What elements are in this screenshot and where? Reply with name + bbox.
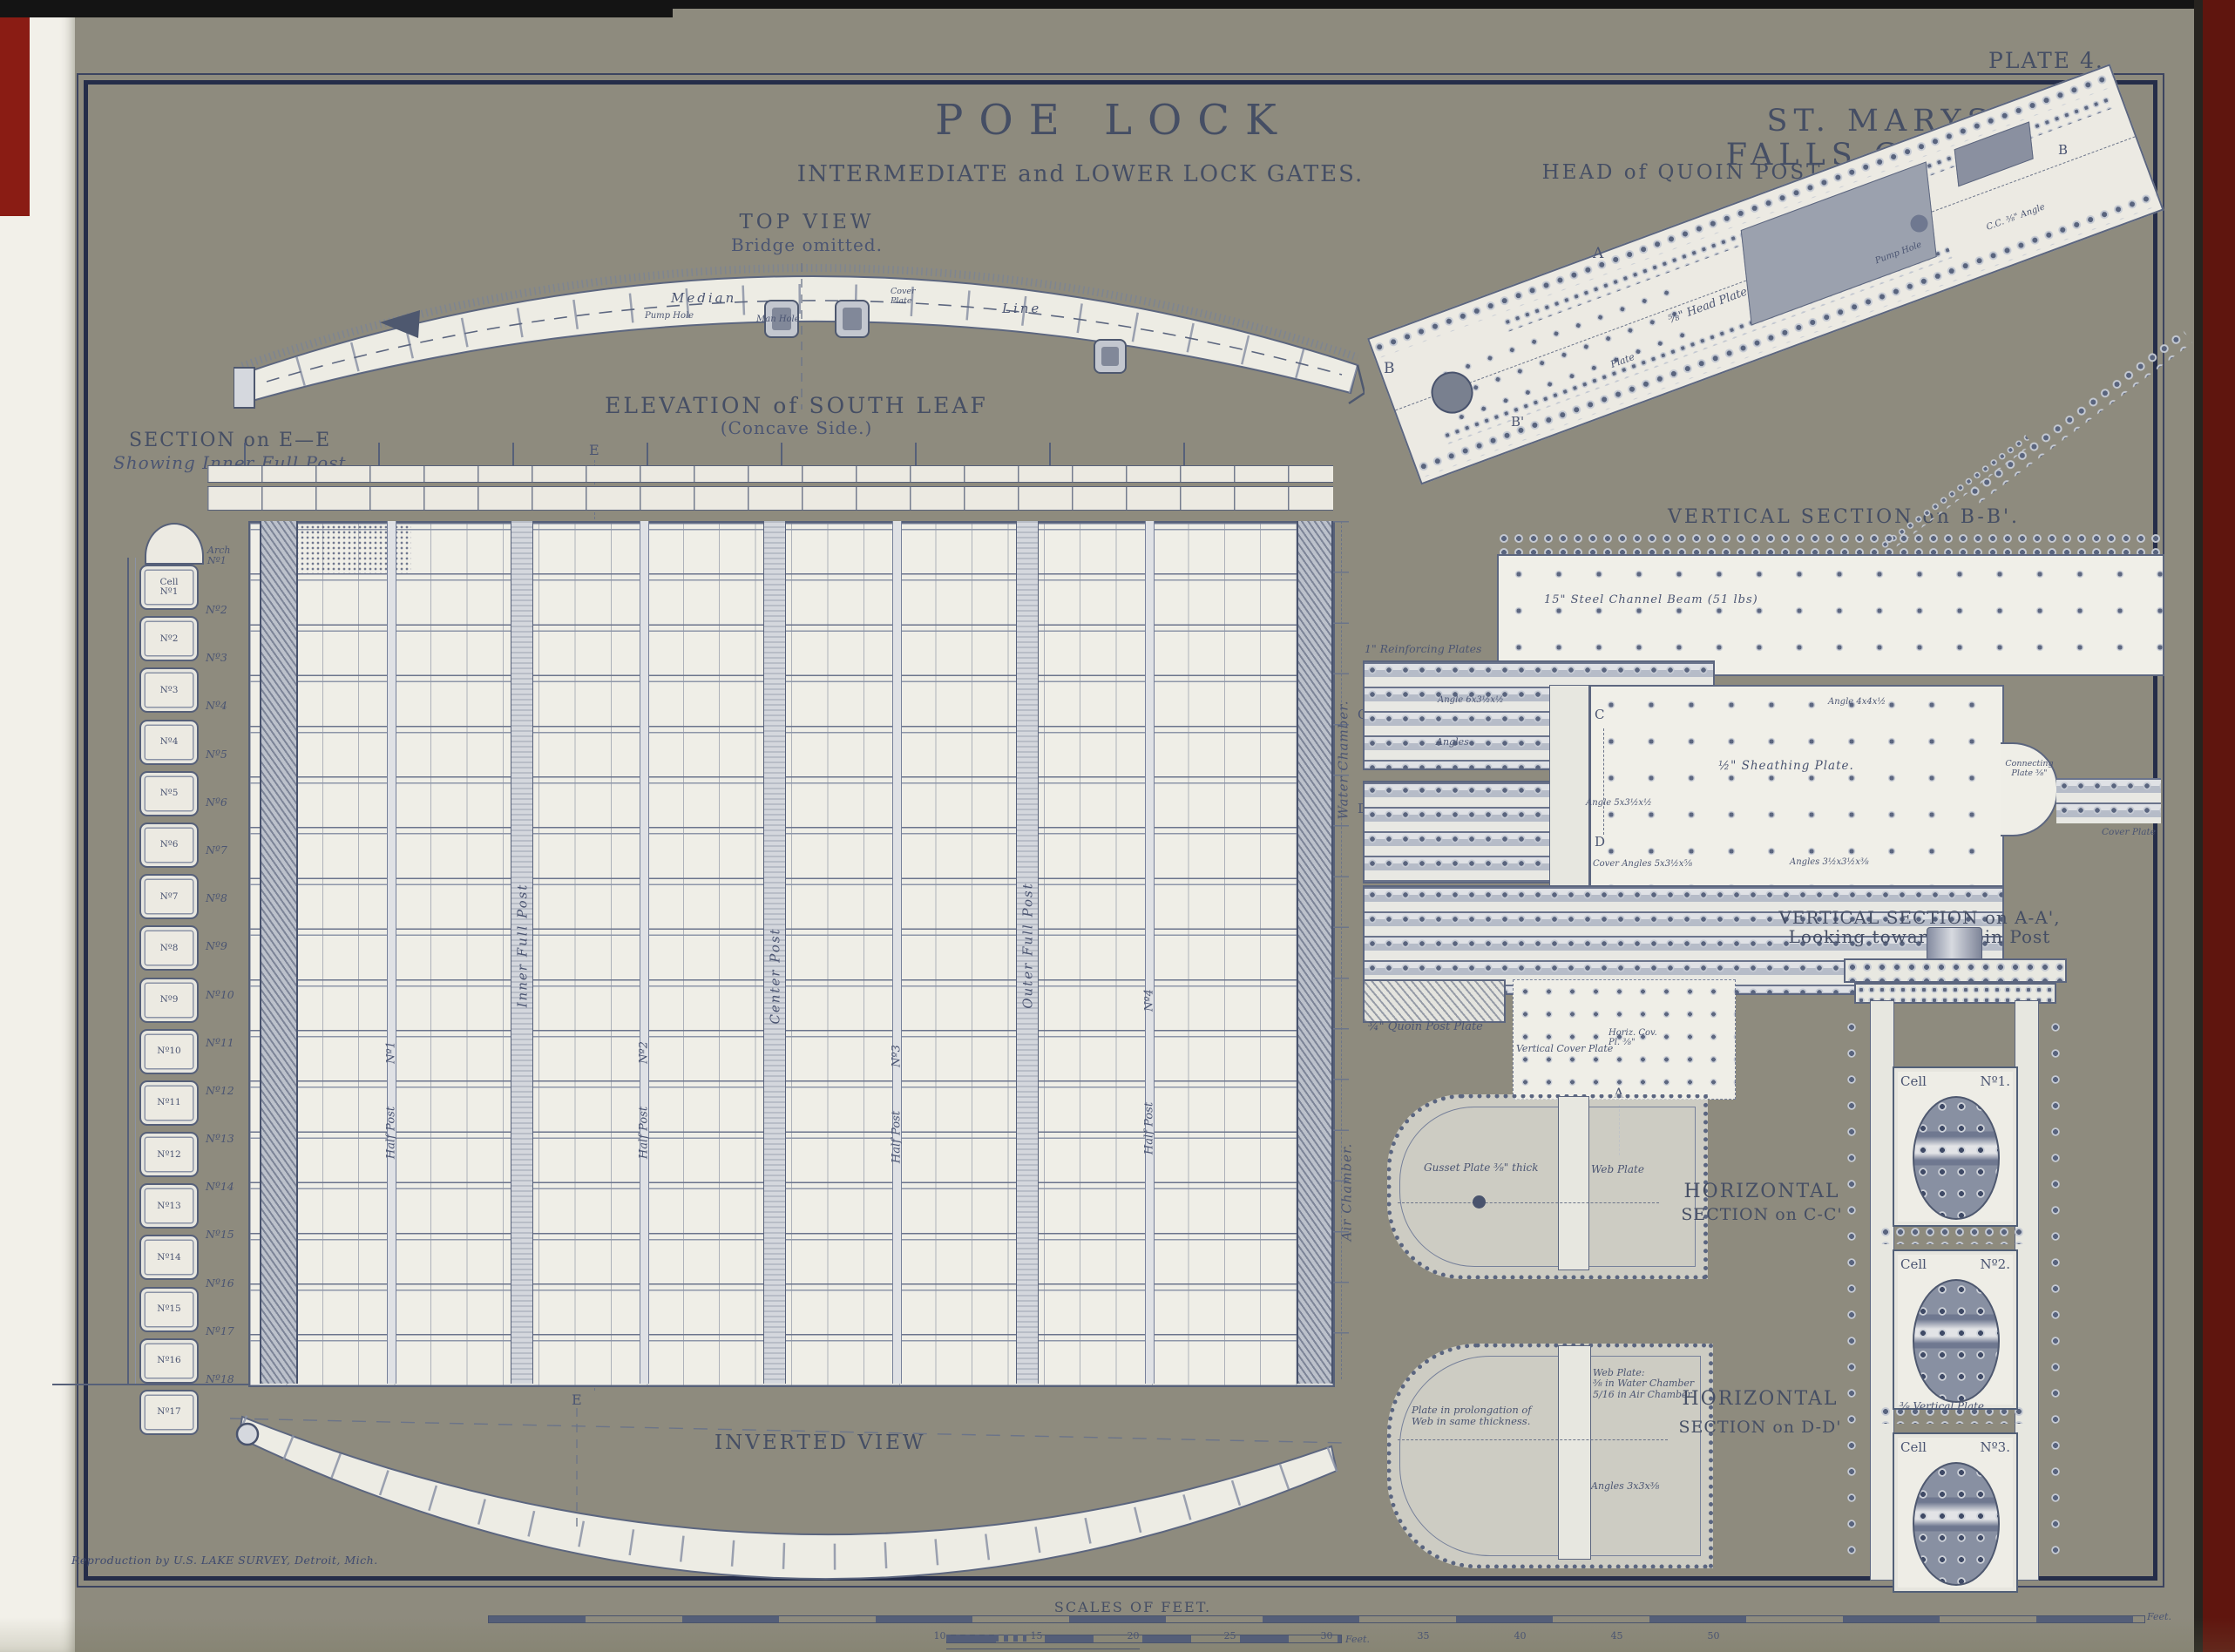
water-chamber-label: Water Chamber.: [1337, 701, 1351, 820]
angle1-label: Angle 6x3½x½: [1438, 695, 1504, 705]
outer-dots-right: [2048, 1014, 2063, 1572]
ee-cell: Nº9: [139, 978, 199, 1023]
ee-cell: Nº16: [139, 1338, 199, 1384]
panel-no3-label: Nº3: [891, 1045, 904, 1067]
page-subtitle: INTERMEDIATE and LOWER LOCK GATES.: [797, 162, 1365, 187]
gusset-label: Gusset Plate ⅜" thick: [1424, 1162, 1539, 1174]
section-cc-title-2: SECTION on C-C': [1681, 1206, 1842, 1224]
elevation-grid: [248, 521, 1335, 1387]
cell-box: Cell Nº2.: [1893, 1249, 2018, 1410]
half-post-label: Half Post: [891, 1111, 904, 1163]
half-post-label: Half Post: [639, 1107, 652, 1159]
ee-cell: Nº14: [139, 1235, 199, 1280]
cell-word: Cell: [1900, 1073, 1927, 1089]
page-title: POE LOCK: [935, 98, 1292, 145]
half-post-strip: [892, 521, 902, 1384]
scanned-engineering-plate: PLATE 4. POE LOCK INTERMEDIATE and LOWER…: [0, 0, 2235, 1652]
cell-stack: Cell Nº1. Cell Nº2. Cell Nº3.: [1893, 1066, 2015, 1593]
outer-full-post-label: Outer Full Post: [1021, 882, 1036, 1008]
ee-cell: Nº7: [139, 874, 199, 919]
feet-label-1: Feet.: [2147, 1612, 2171, 1622]
scan-right-edge-line: [2194, 0, 2203, 1652]
angles-label-dd: Angles 3x3x⅜: [1591, 1481, 1659, 1492]
marker-c-bb: C: [1595, 708, 1604, 722]
cover-angles-label: Cover Angles 5x3½x⅝: [1593, 859, 1692, 869]
panel-no1-label: Nº1: [386, 1041, 399, 1064]
cover-plate-label-bb: Cover Plate: [2102, 828, 2156, 838]
cap-flange: [1844, 958, 2067, 983]
scale-number: 40: [1472, 1630, 1568, 1642]
quoin-post-strip: [260, 521, 298, 1384]
vertical-plate-label: ⅜ Vertical Plate: [1900, 1401, 1984, 1412]
inner-full-post-label: Inner Full Post: [516, 884, 531, 1008]
top-view-title: TOP VIEW: [739, 212, 874, 234]
column-rail-right: [2015, 1000, 2039, 1581]
ee-left-wall: [127, 558, 136, 1385]
pump-hole-label: Pump Hole: [645, 311, 694, 321]
section-cc-title-1: HORIZONTAL: [1683, 1181, 1839, 1203]
ee-cell: Nº10: [139, 1029, 199, 1074]
mitre-post-strip: [1297, 521, 1333, 1384]
elevation-subtitle: (Concave Side.): [721, 418, 873, 437]
scale-bar-3: [946, 1649, 1140, 1649]
reinforcing-label: 1" Reinforcing Plates: [1365, 643, 1481, 655]
section-dd-title-1: HORIZONTAL: [1682, 1389, 1838, 1411]
dd-web-bar: [1558, 1345, 1591, 1560]
connecting-plate-label: Connecting Plate ⅜": [2002, 760, 2056, 778]
ee-cell: Nº3: [139, 667, 199, 713]
credit-line: Reproduction by U.S. LAKE SURVEY, Detroi…: [71, 1554, 378, 1567]
ee-cell: Nº2: [139, 616, 199, 661]
half-post-strip: [387, 521, 396, 1384]
gusset-rivet: [1473, 1195, 1486, 1209]
cc-centerline: [1398, 1202, 1659, 1203]
prolongation-label: Plate in prolongation of Web in same thi…: [1412, 1405, 1532, 1427]
ee-cell: Nº6: [139, 823, 199, 868]
panel-no2-label: Nº2: [639, 1041, 652, 1064]
plate-number: PLATE 4.: [1988, 49, 2104, 73]
angle-top-label: Angle 4x4x½: [1828, 697, 1886, 707]
cell-word: Cell: [1900, 1256, 1927, 1272]
web-plate-label-dd: Web Plate: ⅜ in Water Chamber 5/16 in Ai…: [1593, 1368, 1694, 1400]
head-quoin-title: HEAD of QUOIN POST.: [1542, 162, 1829, 185]
scan-top-edge: [0, 0, 673, 17]
dimension-line: [1341, 521, 1342, 1379]
top-view-drawing: [234, 260, 1365, 412]
ee-cell: Nº15: [139, 1287, 199, 1332]
ee-arch-top-label: Arch Nº1: [207, 545, 230, 567]
feet-label-2: Feet.: [1345, 1635, 1370, 1645]
scale-bar-1: [488, 1615, 2145, 1623]
panel-no4-label: Nº4: [1144, 989, 1157, 1012]
ee-cell: Nº8: [139, 925, 199, 971]
cell-opening: [1913, 1279, 2000, 1403]
elevation-top-beam-2: [207, 486, 1333, 511]
scale-number: 50: [1665, 1630, 1762, 1642]
outer-dots-left: [1844, 1014, 1859, 1572]
ee-cell: Nº4: [139, 720, 199, 765]
bb-channel-plate: [1497, 554, 2164, 676]
elevation-top-stubs: [244, 443, 1316, 465]
cell-number: Nº3.: [1981, 1439, 2011, 1455]
bb-top-band: [1497, 531, 2161, 554]
scan-right-maroon-strip: [2203, 0, 2235, 1652]
bb-vertical-column: [1549, 685, 1589, 897]
column-rail-left: [1870, 1000, 1894, 1581]
angles-label: Angles: [1436, 737, 1469, 748]
half-post-strip: [640, 521, 649, 1384]
scale-number: 35: [1375, 1630, 1472, 1642]
marker-a: A: [1593, 246, 1603, 262]
cover-plate-label: Cover Plate: [891, 288, 916, 306]
air-chamber-label: Air Chamber.: [1340, 1143, 1355, 1242]
marker-d-bb: D: [1595, 835, 1605, 850]
scan-red-strip: [0, 0, 30, 216]
half-post-label: Half Post: [386, 1107, 399, 1159]
ee-cell: Cell Nº1: [139, 565, 199, 610]
inverted-view-drawing: [228, 1408, 1348, 1582]
scan-top-edge-thin: [575, 0, 2235, 9]
marker-b: B: [1384, 361, 1395, 377]
cell-word: Cell: [1900, 1439, 1927, 1455]
ee-cell: Nº13: [139, 1183, 199, 1229]
ee-cell: Nº12: [139, 1132, 199, 1177]
quoin-post-plate-shape: [1363, 979, 1506, 1023]
quoin-plate-label: ¾" Quoin Post Plate: [1368, 1021, 1483, 1034]
channel-beam-label: 15" Steel Channel Beam (51 lbs): [1544, 594, 1758, 607]
bb-right-bands: [2056, 778, 2161, 823]
half-post-label: Half Post: [1144, 1102, 1157, 1154]
section-aa-column: Cell Nº1. Cell Nº2. Cell Nº3.: [1844, 927, 2063, 1582]
section-cc-drawing: [1387, 1094, 1708, 1279]
dd-centerline: [1398, 1439, 1668, 1440]
horiz-cover-label: Horiz. Cov. Pl. ⅜": [1609, 1028, 1657, 1047]
marker-e-bottom: E: [572, 1392, 582, 1408]
scales-title: SCALES OF FEET.: [1054, 1600, 1211, 1615]
cell-box: Cell Nº3.: [1893, 1432, 2018, 1593]
top-view-subtitle: Bridge omitted.: [731, 235, 883, 254]
scale-number: 45: [1568, 1630, 1665, 1642]
angles2-label: Angles 3½x3½x⅜: [1790, 857, 1869, 867]
cell-opening: [1913, 1096, 2000, 1220]
cell-number: Nº2.: [1981, 1256, 2011, 1272]
web-plate-label-cc: Web Plate: [1591, 1164, 1644, 1175]
ee-cell: Nº5: [139, 771, 199, 816]
marker-b-right: B: [2058, 143, 2068, 158]
ee-cell: Nº17: [139, 1390, 199, 1435]
angle2-label: Angle 5x3½x½: [1586, 798, 1652, 808]
man-hole-label: Man Hole: [756, 315, 800, 324]
half-post-strip: [1145, 521, 1155, 1384]
section-bb-title: VERTICAL SECTION on B-B'.: [1668, 507, 2020, 529]
ee-cell-column: Cell Nº1Nº2Nº3Nº4Nº5Nº6Nº7Nº8Nº9Nº10Nº11…: [139, 565, 199, 1441]
cell-number: Nº1.: [1981, 1073, 2011, 1089]
section-dd-title-2: SECTION on D-D': [1678, 1418, 1841, 1437]
elevation-top-beam-1: [207, 465, 1333, 483]
cc-section-line: [1603, 728, 1604, 835]
elevation-title: ELEVATION of SOUTH LEAF: [605, 394, 988, 418]
center-post-label: Center Post: [769, 927, 783, 1024]
cell-opening: [1913, 1462, 2000, 1586]
median-label: Median: [671, 291, 736, 306]
vertical-cover-label: Vertical Cover Plate: [1516, 1044, 1613, 1054]
scan-left-page-edge: [0, 0, 75, 1652]
cell-box: Cell Nº1.: [1893, 1066, 2018, 1227]
sheathing-label: ½" Sheathing Plate.: [1718, 760, 1854, 773]
marker-b-prime: B': [1511, 415, 1524, 430]
line-label: Line: [1002, 301, 1041, 316]
scale-bar-2-subdivisions: [946, 1635, 1026, 1642]
ee-cell: Nº11: [139, 1080, 199, 1126]
cc-web-bar: [1558, 1096, 1589, 1270]
